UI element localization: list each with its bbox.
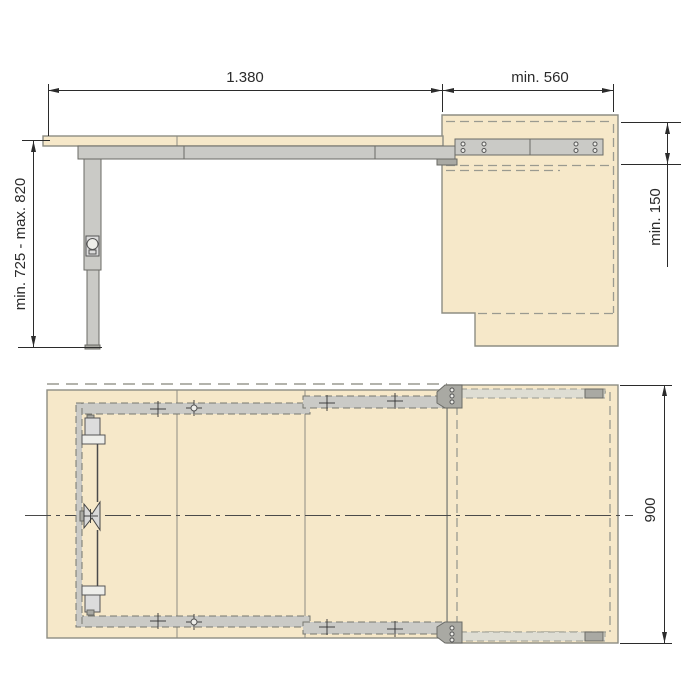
tabletop-side	[43, 136, 443, 146]
support-beam	[78, 146, 455, 159]
slide-rail	[455, 139, 603, 155]
cabinet-plan	[447, 385, 618, 643]
dim-label-height: min. 725 - max. 820	[12, 144, 30, 344]
dim-label-clearance: min. 150	[647, 182, 665, 252]
leg-lower	[87, 270, 99, 345]
rail-end-bracket-top	[437, 385, 462, 408]
plan-view	[25, 384, 633, 643]
technical-drawing	[0, 0, 700, 700]
beam-bracket	[437, 159, 457, 165]
drawing-canvas: 1.380 min. 560 min. 725 - max. 820 min. …	[0, 0, 700, 700]
dim-label-length: 1.380	[185, 69, 305, 87]
dim-label-width: 900	[642, 485, 660, 535]
tabletop-plan	[47, 390, 447, 638]
side-view	[18, 115, 618, 349]
dim-label-depth: min. 560	[470, 69, 610, 87]
rail-end-bracket-bottom	[437, 622, 462, 643]
